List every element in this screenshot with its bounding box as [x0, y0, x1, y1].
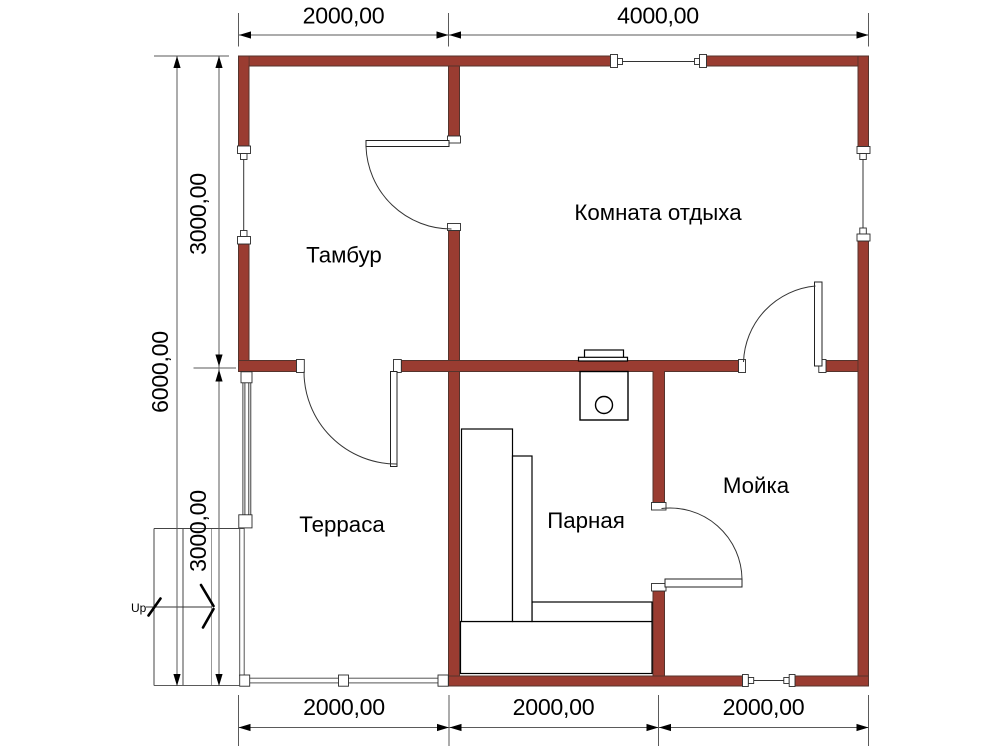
- svg-text:Up: Up: [131, 601, 147, 615]
- svg-text:2000,00: 2000,00: [513, 694, 595, 720]
- svg-text:2000,00: 2000,00: [303, 694, 385, 720]
- svg-text:3000,00: 3000,00: [185, 490, 211, 572]
- svg-text:Парная: Парная: [547, 508, 625, 533]
- svg-text:Терраса: Терраса: [299, 512, 385, 537]
- svg-text:Мойка: Мойка: [723, 473, 790, 498]
- svg-text:2000,00: 2000,00: [303, 3, 385, 29]
- svg-text:Тамбур: Тамбур: [306, 243, 382, 268]
- svg-text:Комната отдыха: Комната отдыха: [574, 200, 742, 225]
- svg-text:2000,00: 2000,00: [723, 694, 805, 720]
- svg-text:3000,00: 3000,00: [185, 173, 211, 255]
- svg-text:4000,00: 4000,00: [617, 3, 699, 29]
- svg-text:6000,00: 6000,00: [147, 331, 173, 413]
